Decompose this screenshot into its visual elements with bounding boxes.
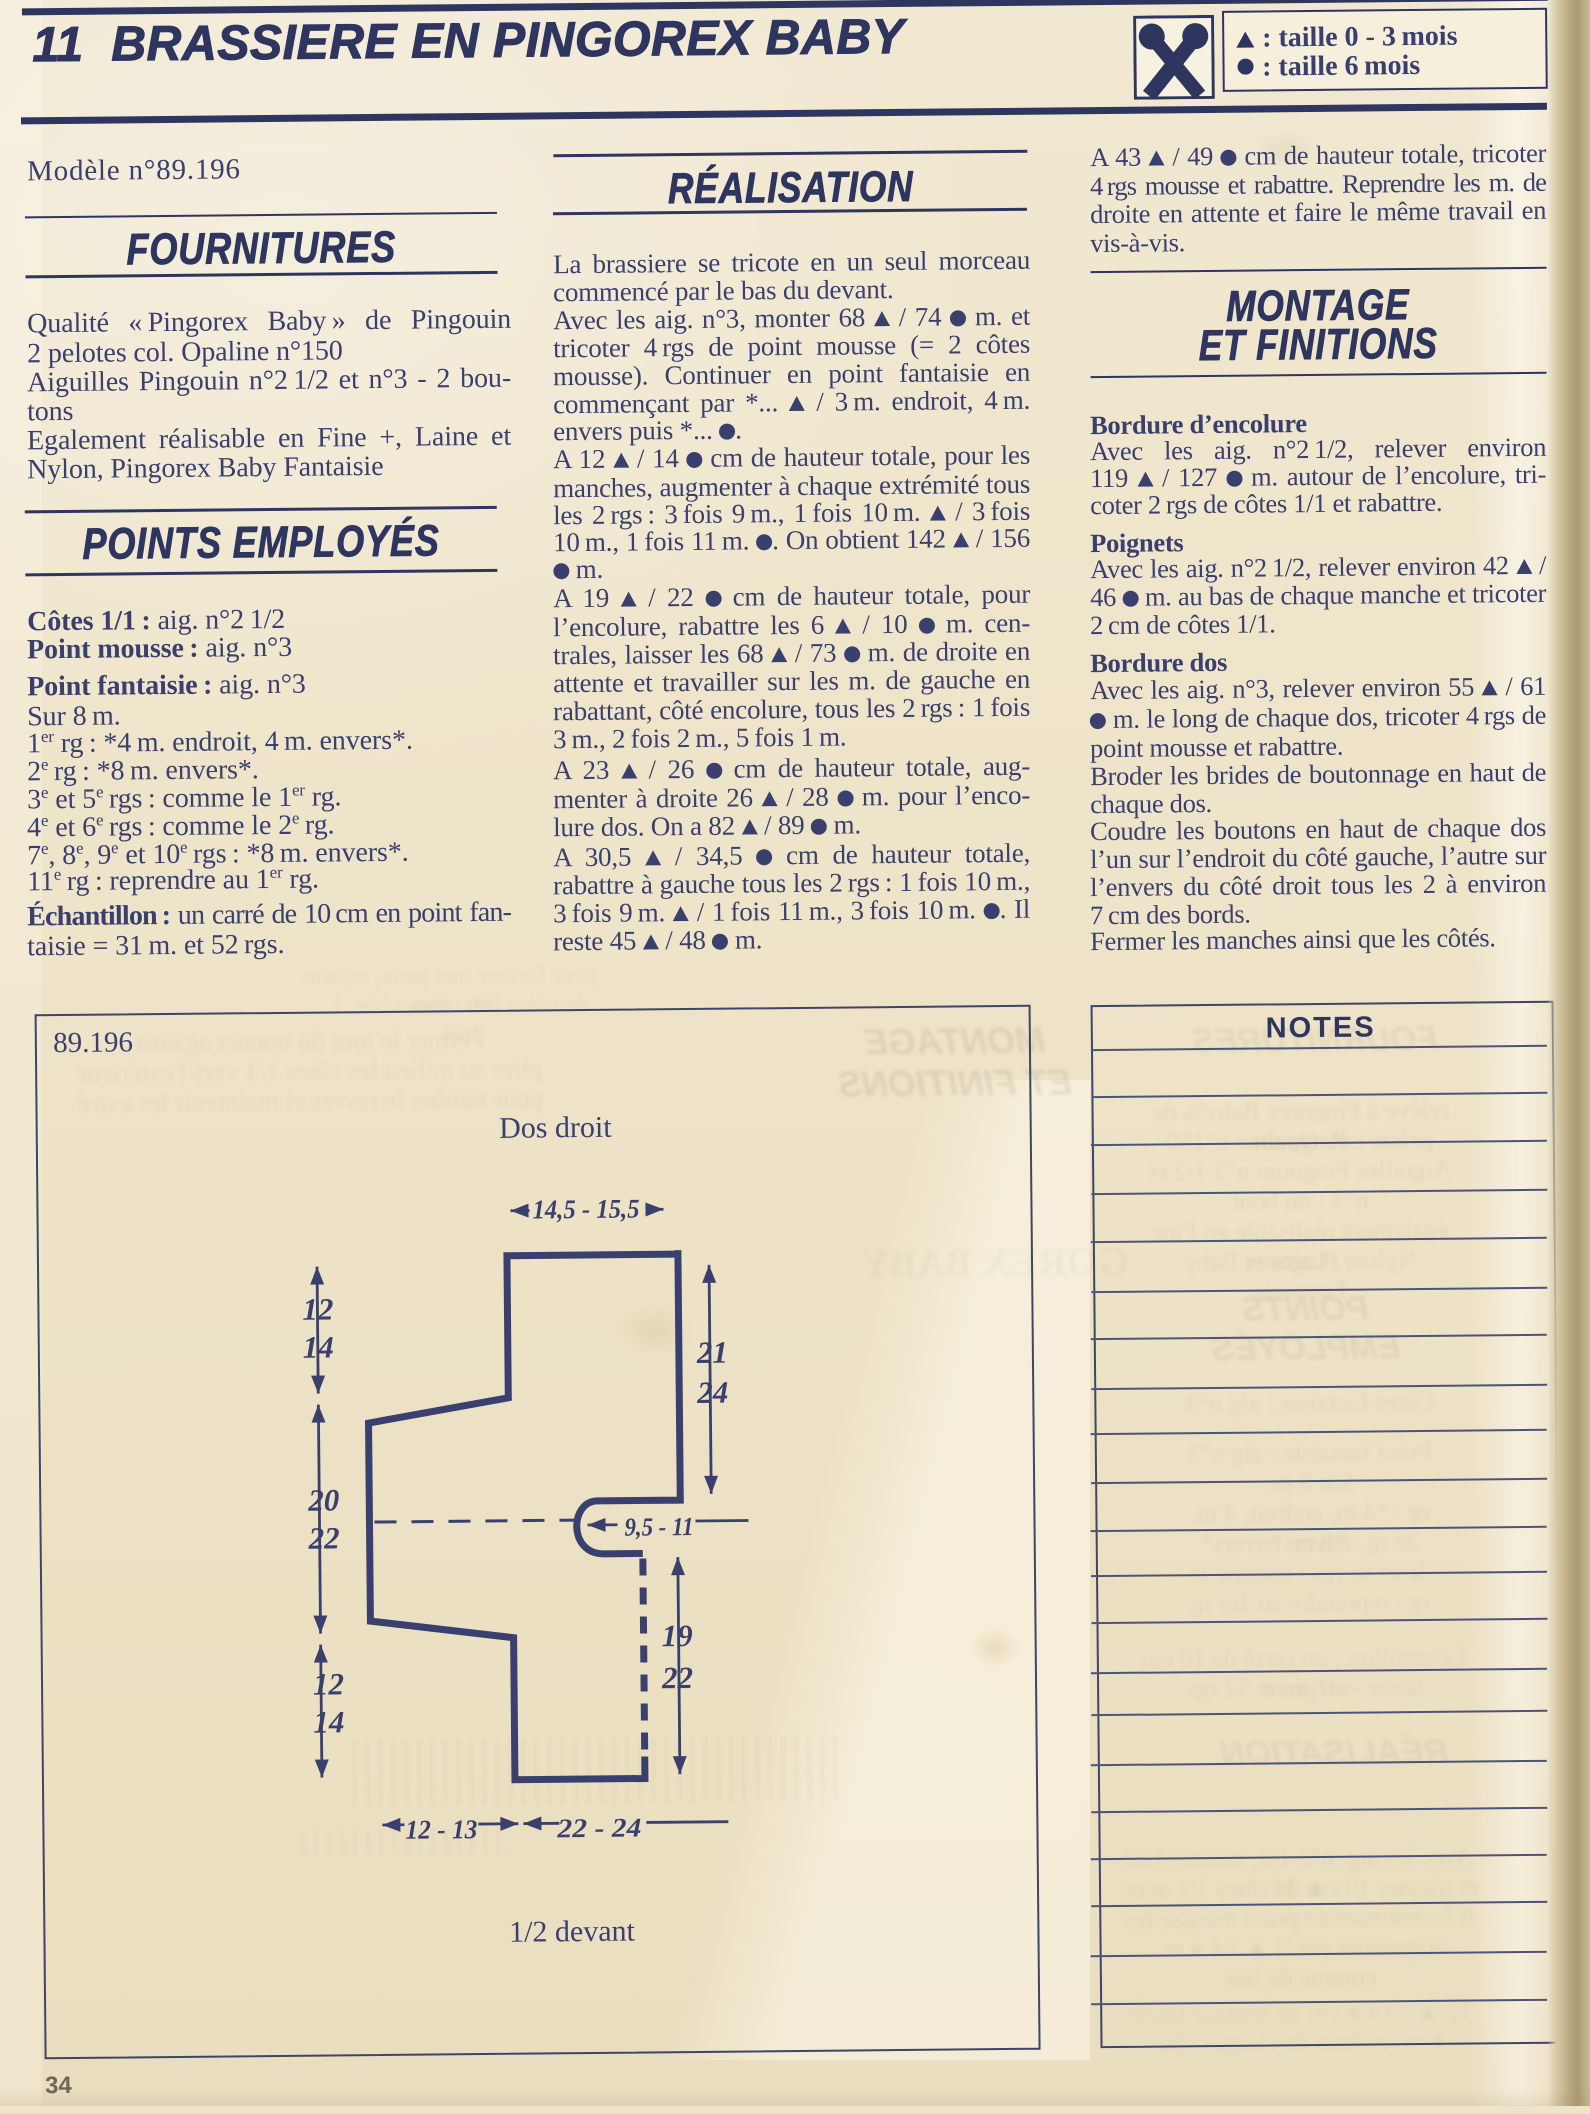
svg-text:24: 24 (696, 1375, 728, 1410)
svg-text:20: 20 (307, 1482, 339, 1517)
svg-text:14: 14 (313, 1704, 344, 1739)
svg-text:19: 19 (661, 1618, 692, 1653)
svg-text:12: 12 (302, 1292, 333, 1327)
svg-text:22: 22 (307, 1520, 339, 1555)
svg-text:14: 14 (302, 1330, 333, 1365)
svg-text:14,5 - 15,5: 14,5 - 15,5 (532, 1194, 639, 1225)
svg-text:12 - 13: 12 - 13 (405, 1814, 477, 1845)
svg-text:21: 21 (695, 1335, 727, 1370)
svg-text:12: 12 (313, 1666, 344, 1701)
svg-text:22: 22 (661, 1660, 693, 1695)
svg-text:9,5 - 11: 9,5 - 11 (624, 1512, 693, 1542)
svg-text:22 - 24: 22 - 24 (556, 1813, 641, 1844)
